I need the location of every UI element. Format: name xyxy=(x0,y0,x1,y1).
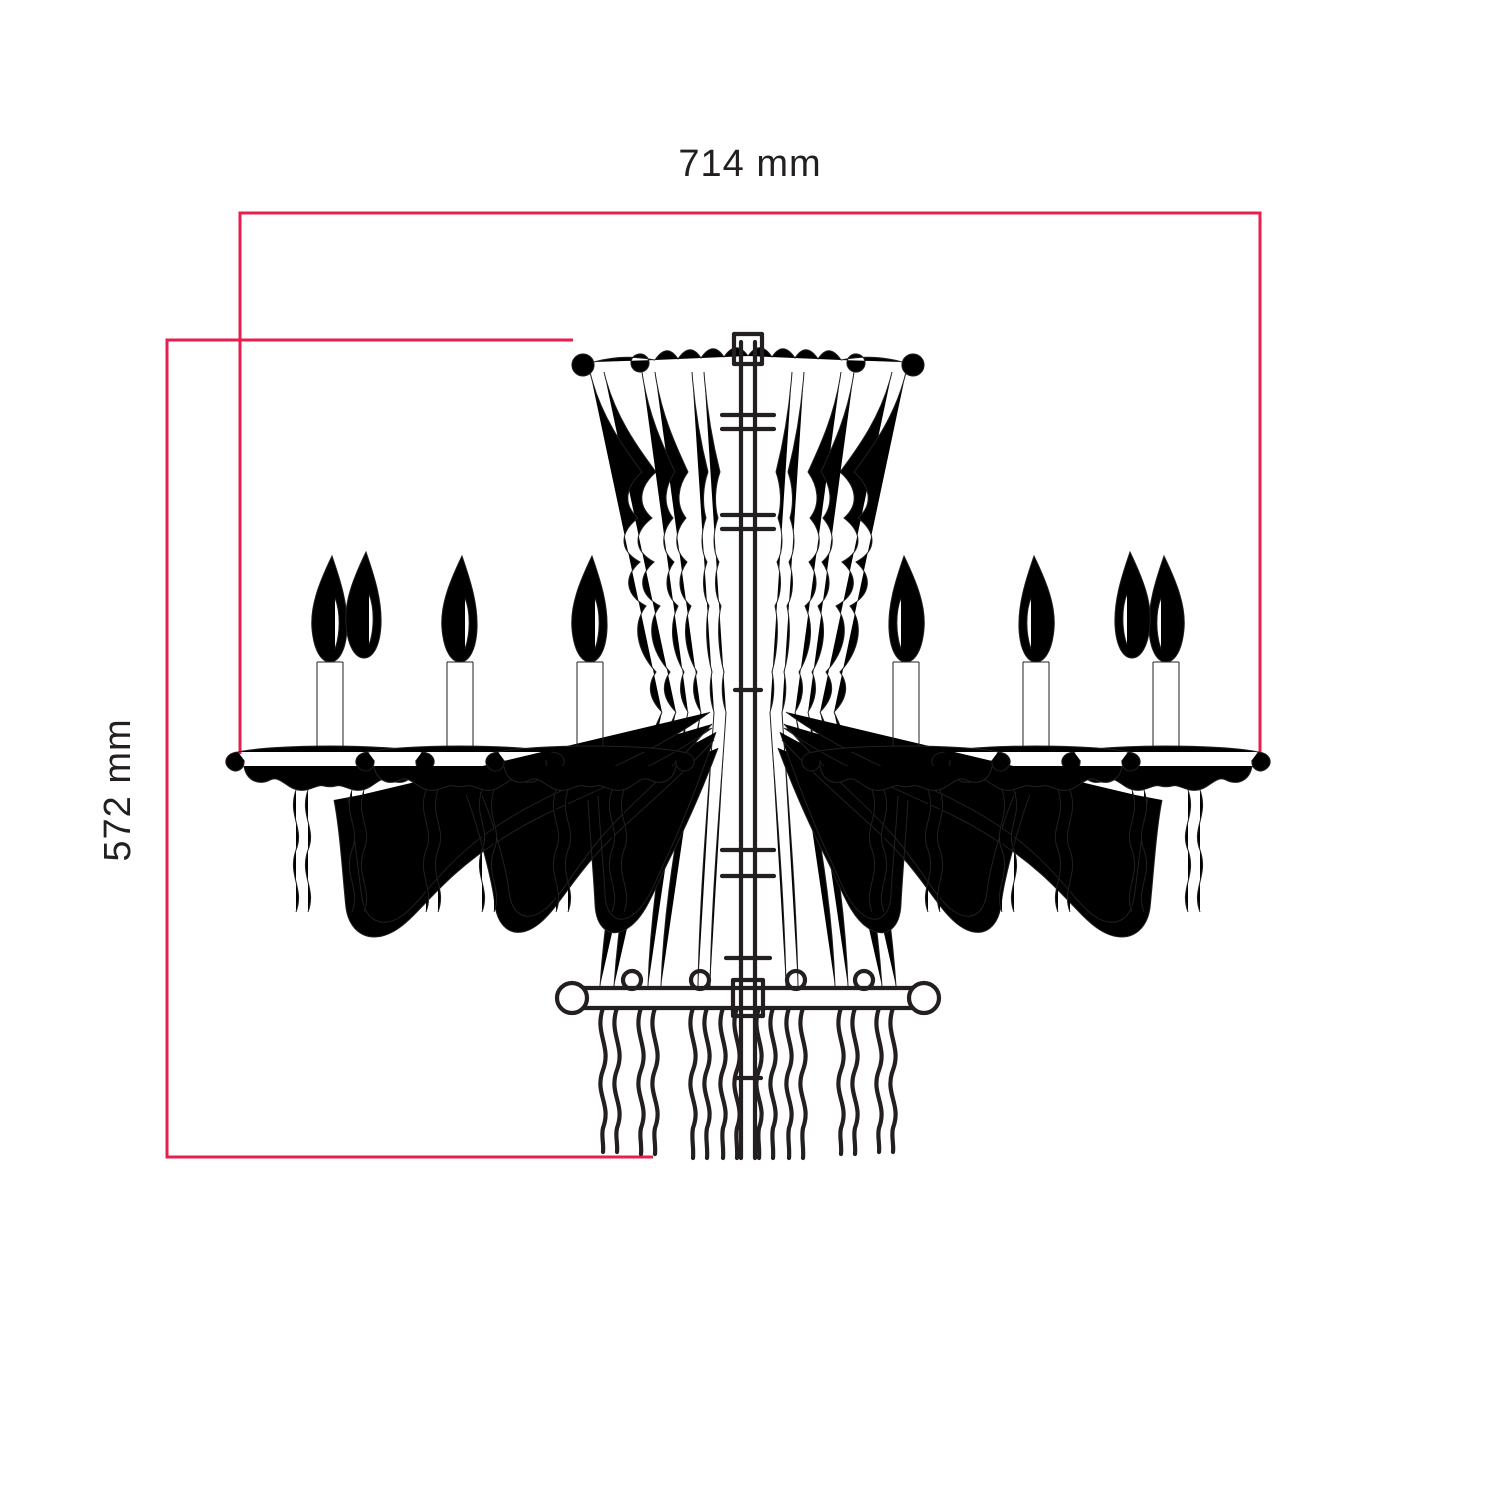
stem-lines xyxy=(741,342,755,1158)
chandelier-right-half xyxy=(748,348,1270,986)
bar-end-ball xyxy=(557,983,587,1013)
skirt-strands xyxy=(600,1008,895,1158)
skirt-strand-outer xyxy=(600,1008,895,1154)
height-dimension-label: 572 mm xyxy=(97,718,139,861)
chandelier-left-half xyxy=(226,348,748,986)
skirt-strand-inner xyxy=(690,1008,805,1158)
technical-drawing-canvas: 714 mm 572 mm xyxy=(0,0,1500,1500)
width-dimension-line xyxy=(240,213,1260,754)
center-stem xyxy=(722,334,774,1158)
chandelier-drawing xyxy=(226,334,1270,1158)
technical-drawing-page: 714 mm 572 mm xyxy=(0,0,1500,1500)
bar-end-ball xyxy=(909,983,939,1013)
width-dimension-label: 714 mm xyxy=(678,143,821,185)
